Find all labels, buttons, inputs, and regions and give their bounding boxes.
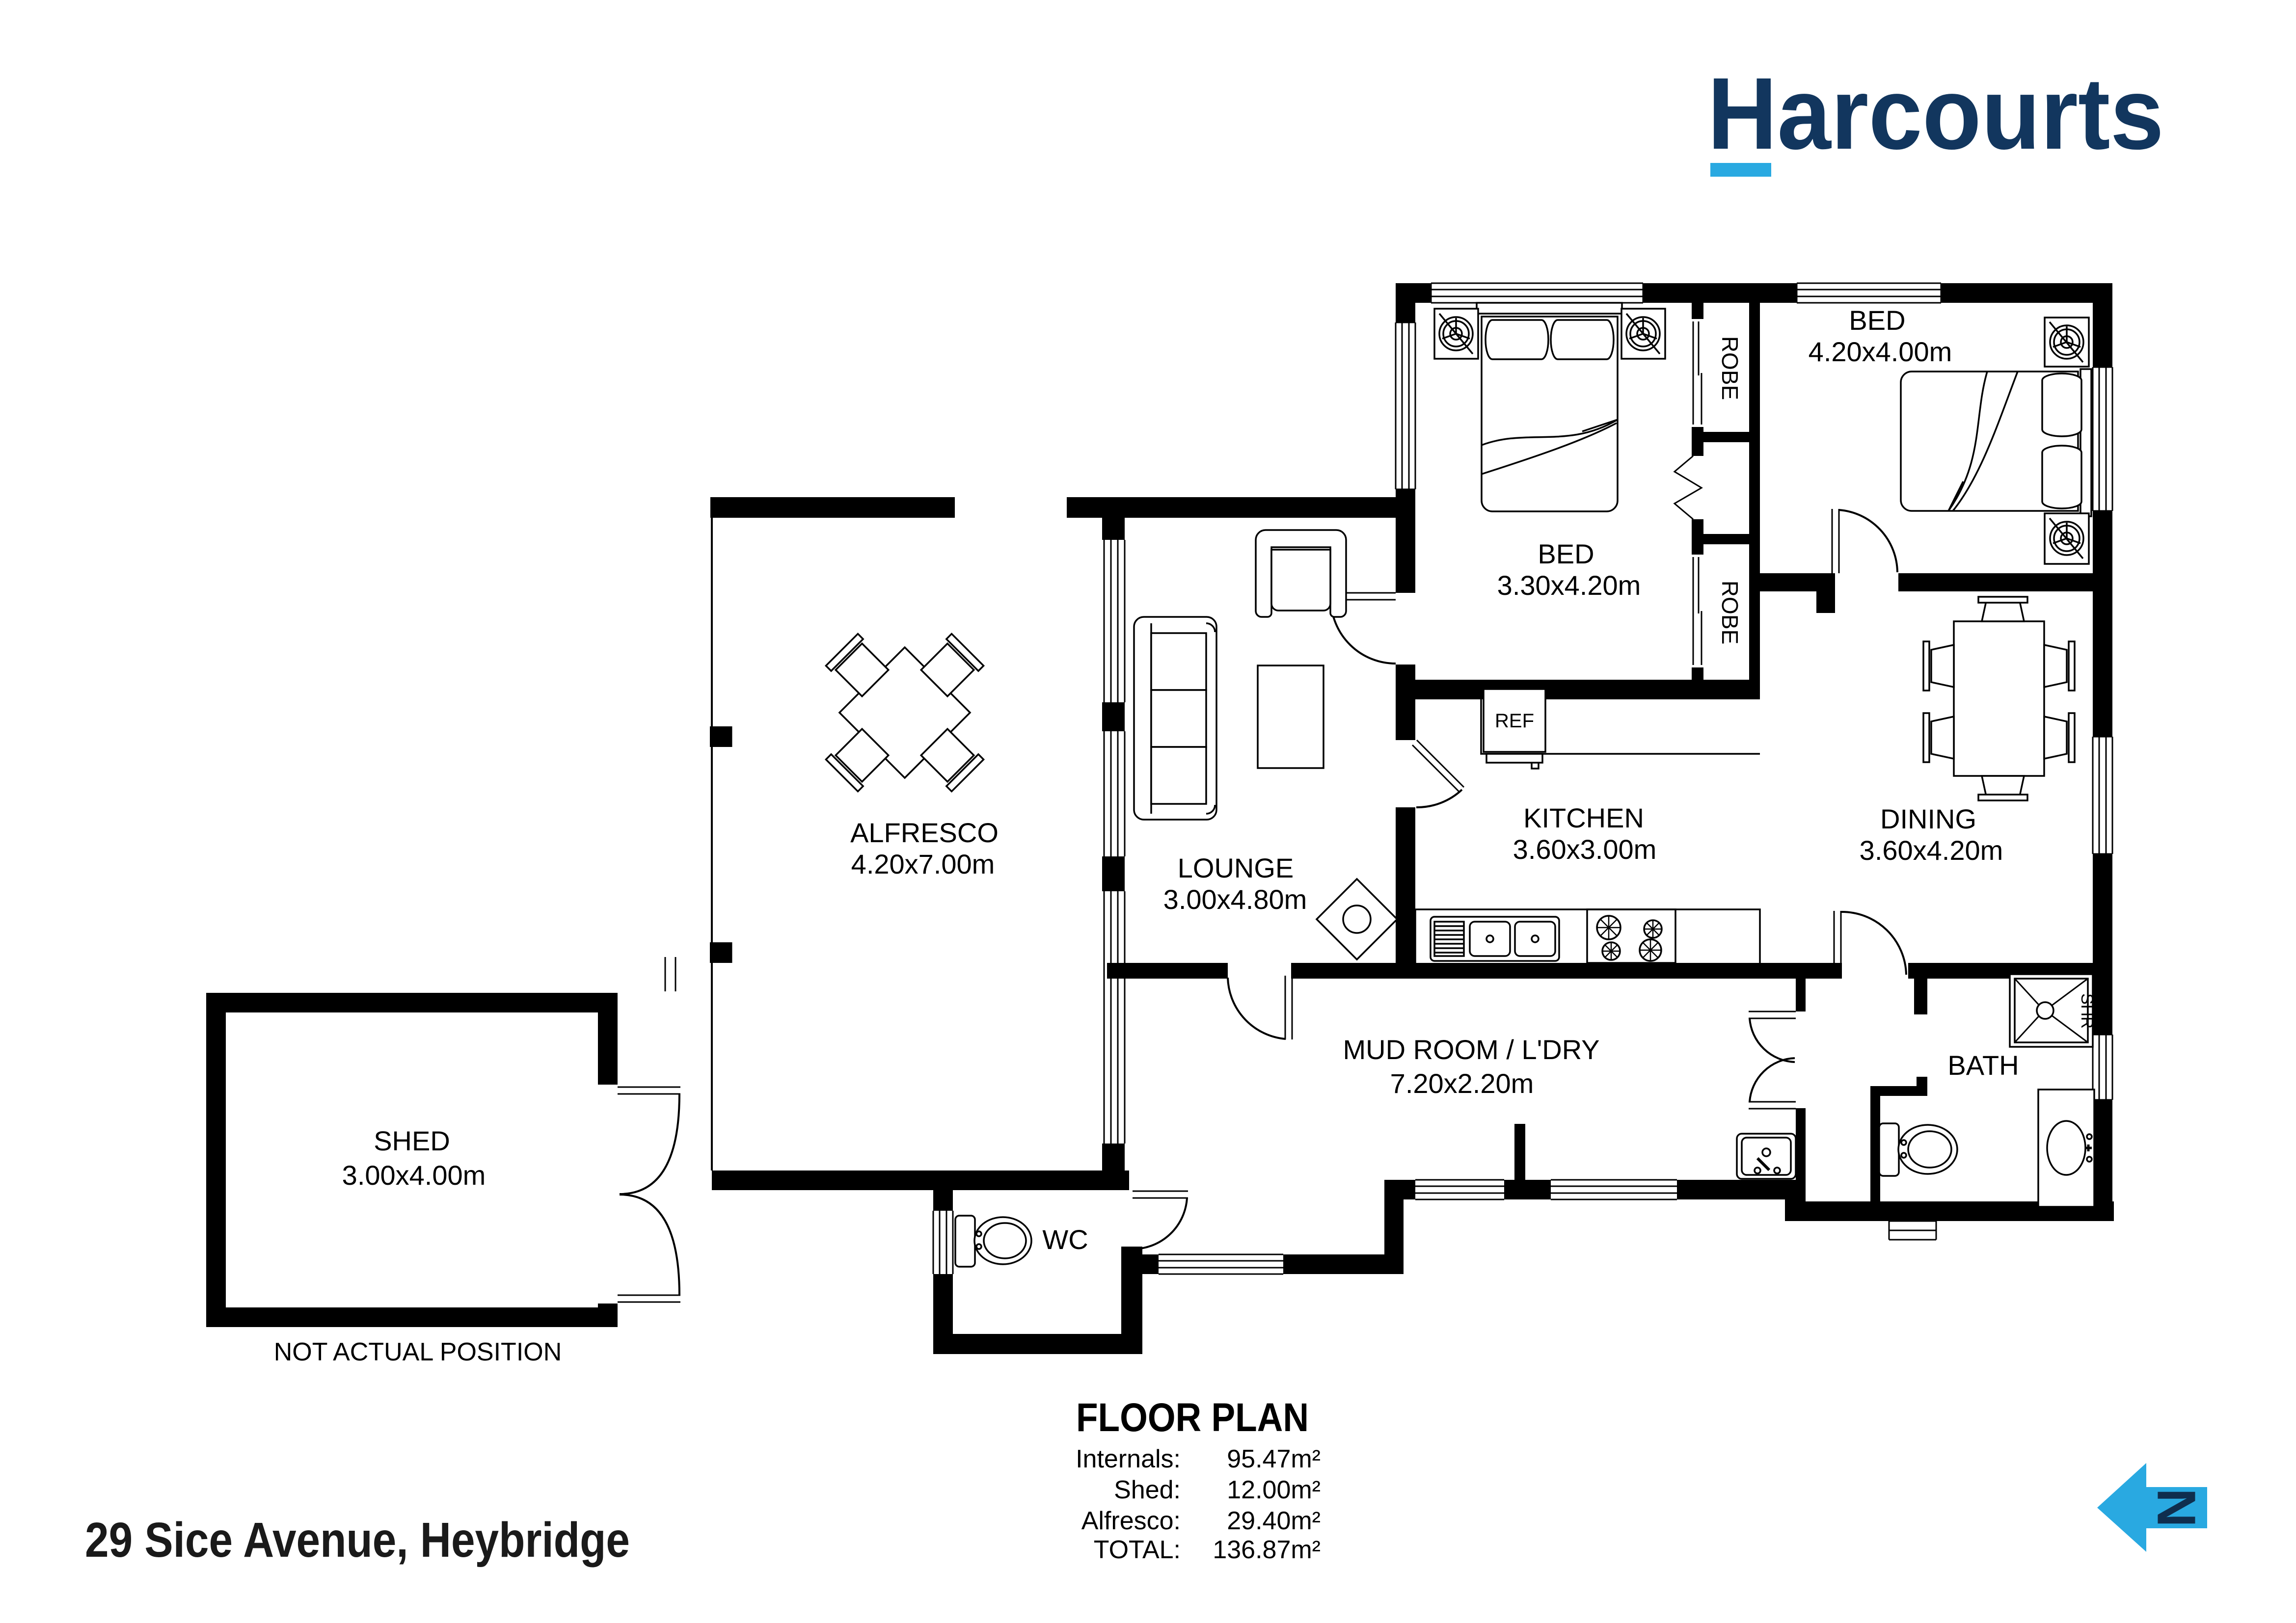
svg-text:3.00x4.00m: 3.00x4.00m	[342, 1160, 486, 1191]
svg-text:Internals:: Internals:	[1076, 1445, 1181, 1473]
svg-text:3.30x4.20m: 3.30x4.20m	[1497, 570, 1641, 601]
svg-text:KITCHEN: KITCHEN	[1523, 802, 1644, 833]
svg-text:MUD ROOM / L'DRY: MUD ROOM / L'DRY	[1343, 1034, 1599, 1065]
svg-text:3.60x4.20m: 3.60x4.20m	[1860, 835, 2003, 866]
svg-text:Harcourts: Harcourts	[1707, 57, 2164, 171]
svg-text:BATH: BATH	[1947, 1050, 2019, 1081]
svg-text:WC: WC	[1042, 1224, 1088, 1255]
svg-text:4.20x7.00m: 4.20x7.00m	[851, 849, 995, 879]
svg-text:Shed:: Shed:	[1114, 1476, 1181, 1504]
svg-text:Alfresco:: Alfresco:	[1081, 1507, 1181, 1535]
svg-text:3.60x3.00m: 3.60x3.00m	[1513, 834, 1657, 865]
svg-text:SHR: SHR	[2078, 993, 2096, 1029]
svg-text:N: N	[2147, 1488, 2207, 1527]
svg-text:4.20x4.00m: 4.20x4.00m	[1809, 336, 1952, 367]
svg-text:NOT ACTUAL POSITION: NOT ACTUAL POSITION	[274, 1338, 562, 1366]
svg-text:136.87m²: 136.87m²	[1213, 1536, 1321, 1564]
svg-text:DINING: DINING	[1880, 803, 1976, 834]
svg-text:29 Sice Avenue, Heybridge: 29 Sice Avenue, Heybridge	[85, 1513, 630, 1568]
svg-text:ROBE: ROBE	[1717, 581, 1743, 644]
svg-text:BED: BED	[1538, 538, 1594, 569]
svg-text:7.20x2.20m: 7.20x2.20m	[1390, 1068, 1534, 1099]
svg-text:SHED: SHED	[374, 1125, 450, 1156]
svg-text:12.00m²: 12.00m²	[1227, 1476, 1321, 1504]
svg-text:BED: BED	[1849, 305, 1905, 336]
svg-text:95.47m²: 95.47m²	[1227, 1445, 1321, 1473]
svg-text:3.00x4.80m: 3.00x4.80m	[1163, 884, 1307, 915]
svg-text:ALFRESCO: ALFRESCO	[850, 817, 999, 848]
svg-text:ROBE: ROBE	[1717, 336, 1743, 400]
svg-text:TOTAL:: TOTAL:	[1094, 1536, 1181, 1564]
svg-text:FLOOR PLAN: FLOOR PLAN	[1076, 1395, 1309, 1440]
svg-text:REF: REF	[1495, 710, 1534, 732]
svg-text:LOUNGE: LOUNGE	[1178, 852, 1294, 883]
svg-text:29.40m²: 29.40m²	[1227, 1507, 1321, 1535]
